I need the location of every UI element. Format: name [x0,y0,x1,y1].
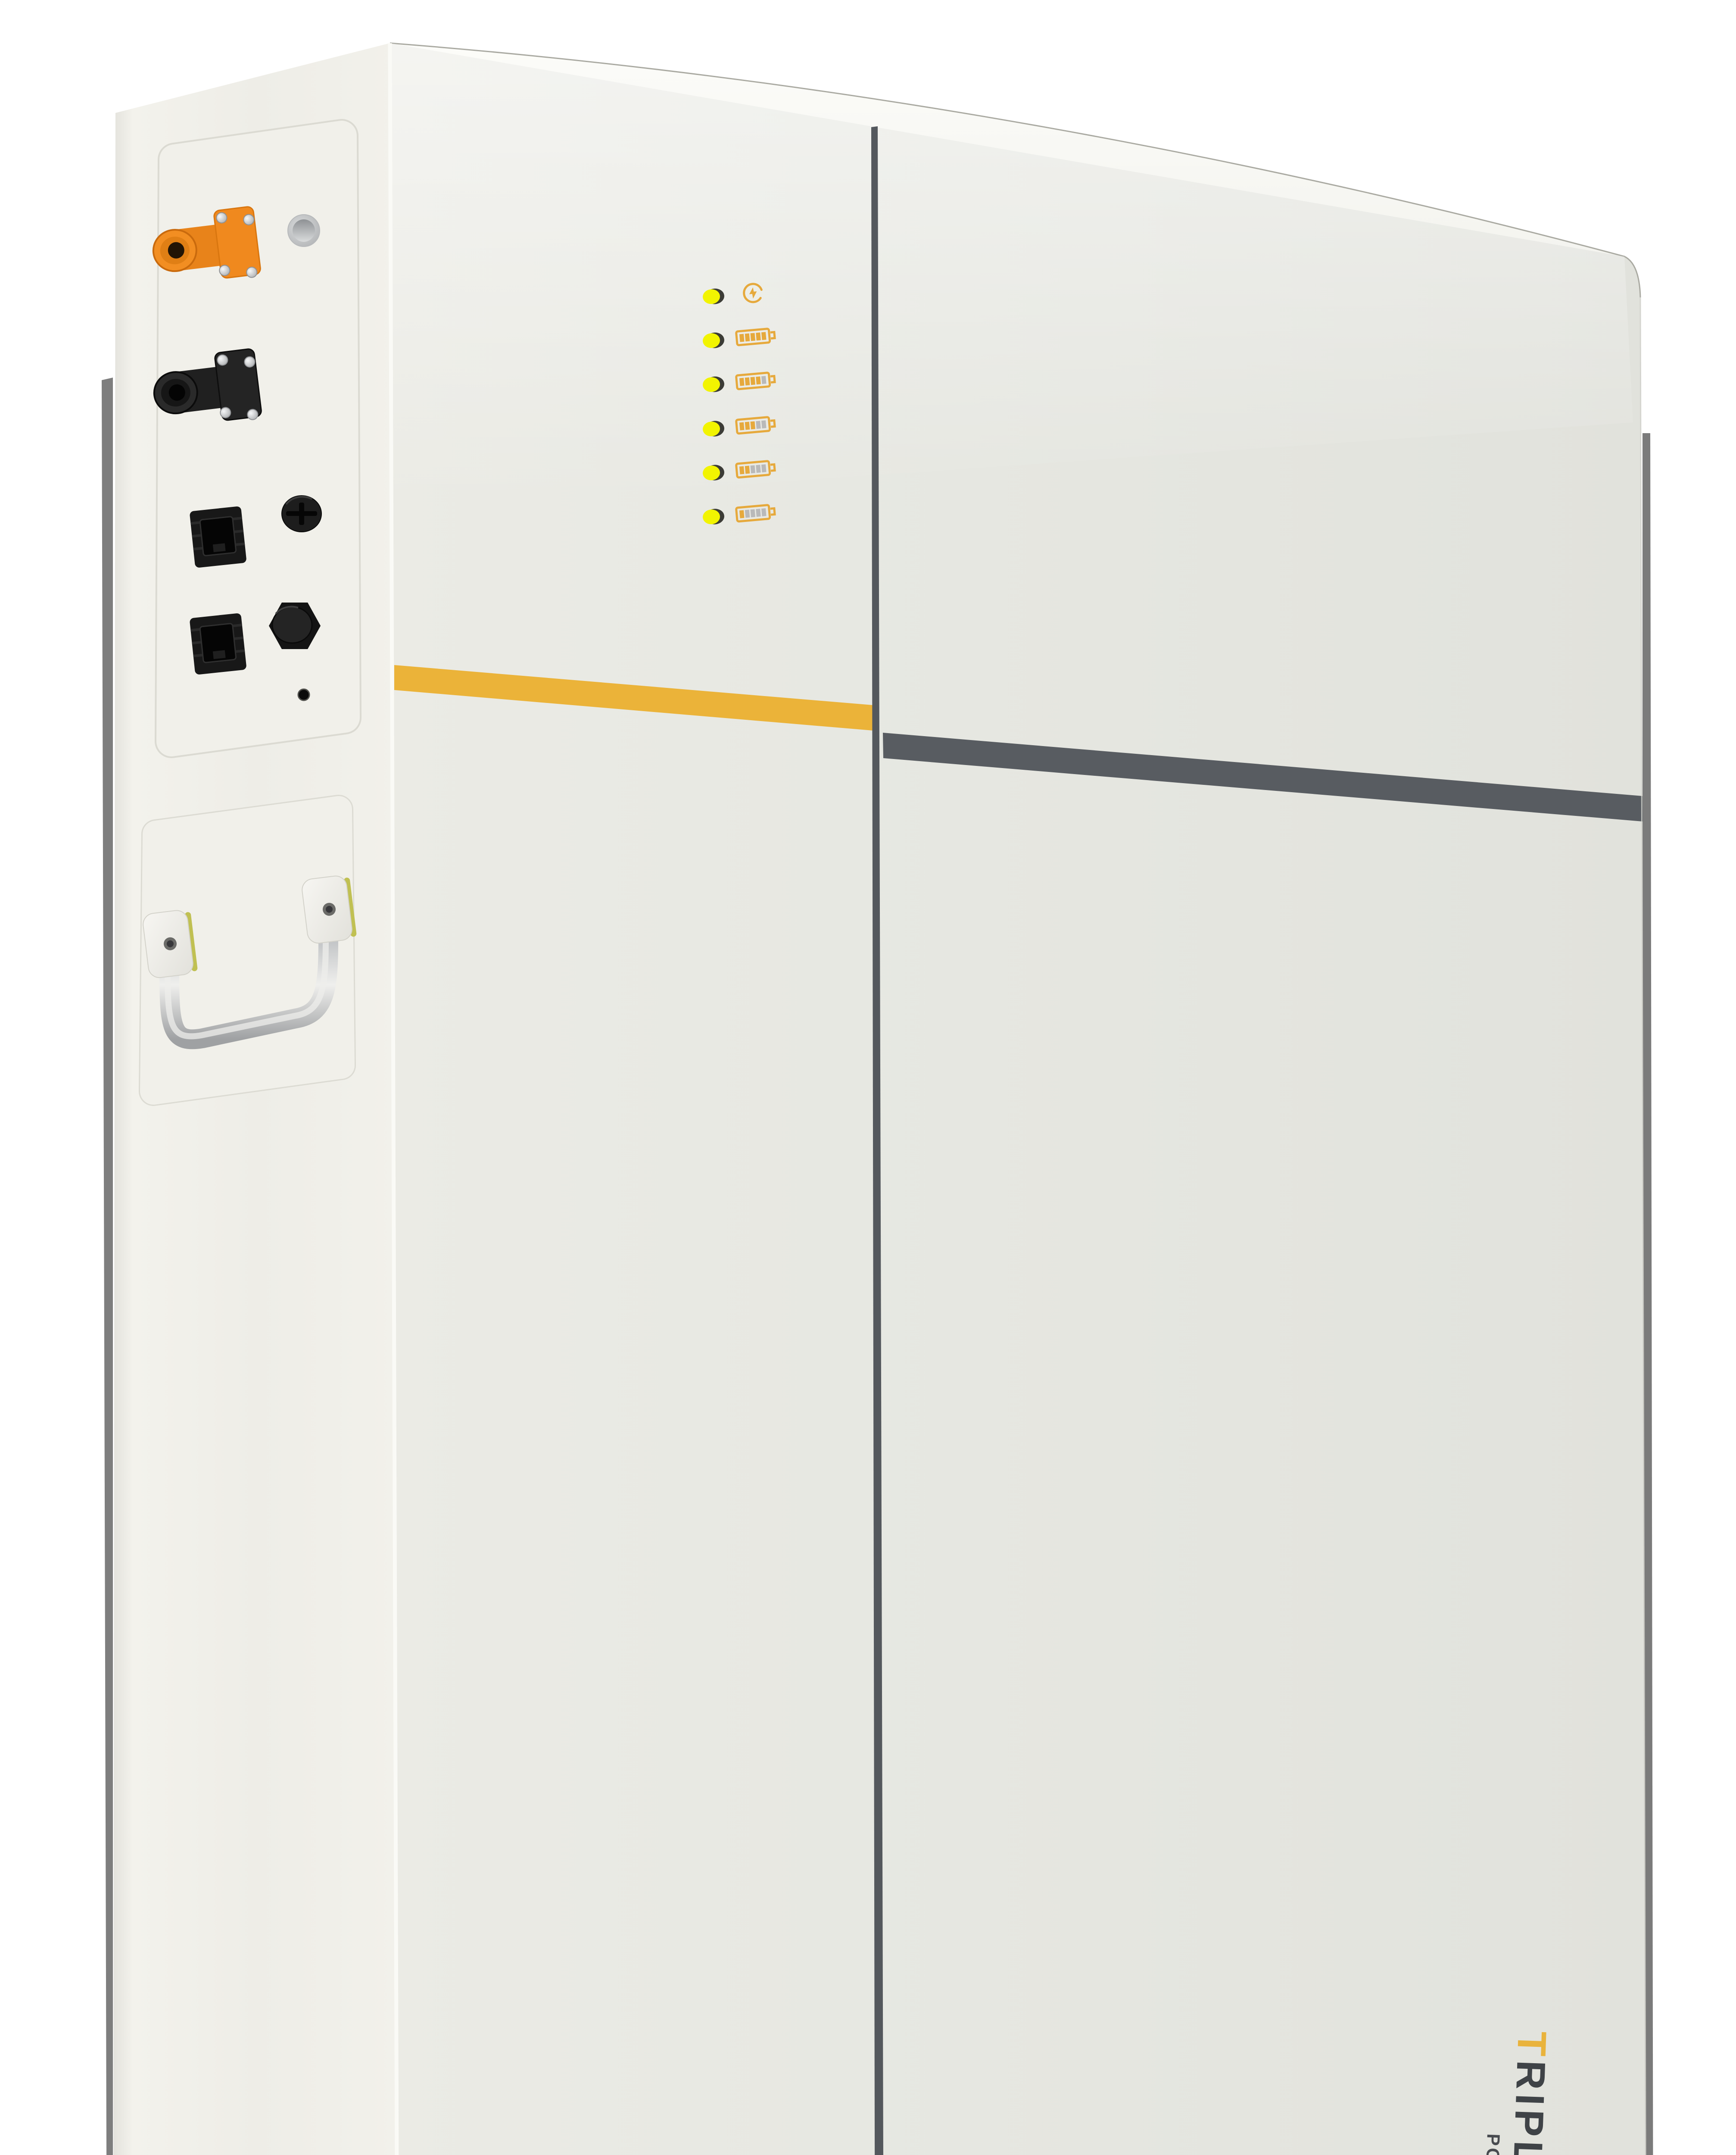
battery-segment [739,378,745,386]
battery-segment [756,332,761,340]
battery-segment [761,376,767,384]
battery-segment [761,508,767,516]
screw-cap [282,496,321,532]
battery-segment [756,465,761,473]
connector-panel [149,136,345,741]
battery-segment [739,510,745,518]
battery-segment [750,509,755,517]
battery-segment [756,376,761,384]
handle-assembly [142,809,357,1091]
battery-segment [756,421,761,429]
comm-port-lower [190,613,247,675]
battery-segment [745,422,750,430]
battery-segment [750,465,755,473]
battery-segment [750,333,755,341]
battery-segment [745,466,750,474]
battery-segment [739,422,745,431]
brand-subtitle: POWER [1481,2133,1504,2155]
battery-segment [761,332,767,340]
handle-mount-right [301,874,357,944]
battery-segment [745,378,750,386]
battery-segment [745,510,750,518]
brand-wordmark: TRIPLE [1504,2030,1555,2155]
battery-segment [739,334,745,342]
battery-segment [745,334,750,342]
battery-segment [750,421,755,429]
brand-rest: RIPLE [1504,2060,1554,2155]
vent-button [288,215,320,247]
comm-port-upper [190,506,247,568]
product-render: TRIPLE POWER [0,0,1736,2155]
pinhole-vent [298,689,309,700]
brand-initial: T [1509,2030,1555,2061]
handle-mount-left [142,909,198,979]
battery-segment [750,377,755,385]
battery-segment [756,509,761,517]
battery-segment [761,464,767,472]
battery-segment [739,466,745,475]
battery-segment [761,420,767,428]
